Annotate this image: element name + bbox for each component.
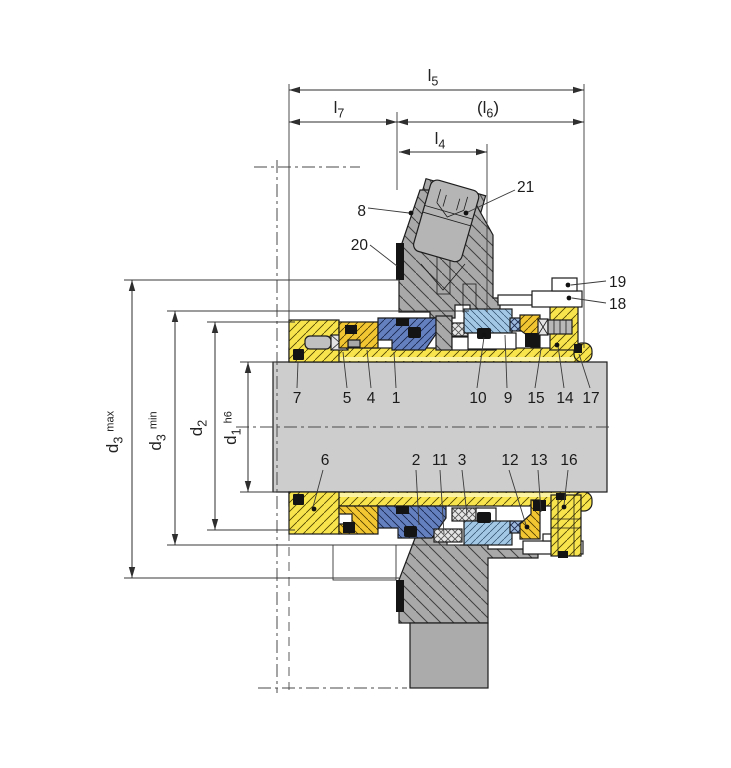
gland-gasket-upper — [396, 243, 404, 280]
part-label-13: 13 — [530, 452, 547, 469]
set-screw-5-head — [305, 336, 331, 349]
o-ring-6 — [293, 494, 304, 505]
o-ring-on-11-side — [404, 526, 417, 537]
part-label-11: 11 — [432, 452, 448, 469]
part-label-10: 10 — [469, 390, 487, 407]
spring-3a — [452, 508, 478, 521]
dim-label-l4: l4 — [435, 129, 446, 152]
part-label-1: 1 — [392, 390, 401, 407]
dim-label-l5: l5 — [428, 66, 439, 89]
o-ring-13 — [533, 500, 546, 511]
dim-label-d3min: d3min — [146, 411, 169, 450]
seal-cross-section-drawing: l5 l7 (l6) l4 d3max d3min d2 d1h6 8 20 2… — [0, 0, 731, 768]
part-label-2: 2 — [412, 452, 421, 469]
part-label-18: 18 — [609, 296, 626, 313]
dim-label-l6: (l6) — [477, 98, 499, 121]
part-label-4: 4 — [367, 390, 376, 407]
stationary-seat-12 — [464, 521, 512, 545]
part-label-21: 21 — [517, 179, 534, 196]
dim-label-d1: d1h6 — [221, 411, 244, 445]
housing-solid-block — [410, 623, 488, 688]
o-ring-7 — [293, 349, 304, 360]
seat-carrier-upper — [468, 333, 516, 349]
part-label-9: 9 — [504, 390, 513, 407]
setting-plate-arm — [498, 295, 532, 305]
part-label-14: 14 — [556, 390, 574, 407]
o-ring-16-bottom — [558, 551, 568, 558]
part-label-6: 6 — [321, 452, 330, 469]
o-ring-on-4 — [345, 325, 357, 334]
dim-label-d3max: d3max — [103, 410, 126, 453]
part-label-15: 15 — [527, 390, 544, 407]
plug-16 — [551, 495, 581, 556]
part-label-19: 19 — [609, 274, 626, 291]
part-label-20: 20 — [351, 237, 369, 254]
dim-label-d2: d2 — [187, 420, 210, 436]
o-ring-on-1-top — [396, 318, 409, 326]
o-ring-17 — [574, 344, 582, 353]
part-label-3: 3 — [458, 452, 467, 469]
dim-label-l7: l7 — [334, 98, 345, 121]
part-label-7: 7 — [293, 390, 302, 407]
part-label-8: 8 — [357, 203, 366, 220]
o-ring-on-2 — [343, 522, 355, 533]
housing-recess-outline — [333, 545, 396, 580]
o-ring-on-11-top — [396, 506, 409, 514]
spring-3b — [434, 529, 462, 542]
gland-housing — [396, 178, 500, 318]
stuffing-box-wall — [399, 533, 538, 623]
part-label-12: 12 — [501, 452, 518, 469]
part-label-16: 16 — [560, 452, 577, 469]
drawing-svg: l5 l7 (l6) l4 d3max d3min d2 d1h6 8 20 2… — [0, 0, 731, 768]
gland-gasket-lower — [396, 580, 404, 612]
lower-housing — [396, 533, 538, 688]
part-label-17: 17 — [582, 390, 599, 407]
drive-ring-10 — [436, 316, 452, 350]
part-label-5: 5 — [343, 390, 352, 407]
o-ring-on-1-side — [408, 327, 421, 338]
setting-plate-18 — [532, 291, 582, 307]
o-ring-seat-lower — [477, 512, 491, 523]
